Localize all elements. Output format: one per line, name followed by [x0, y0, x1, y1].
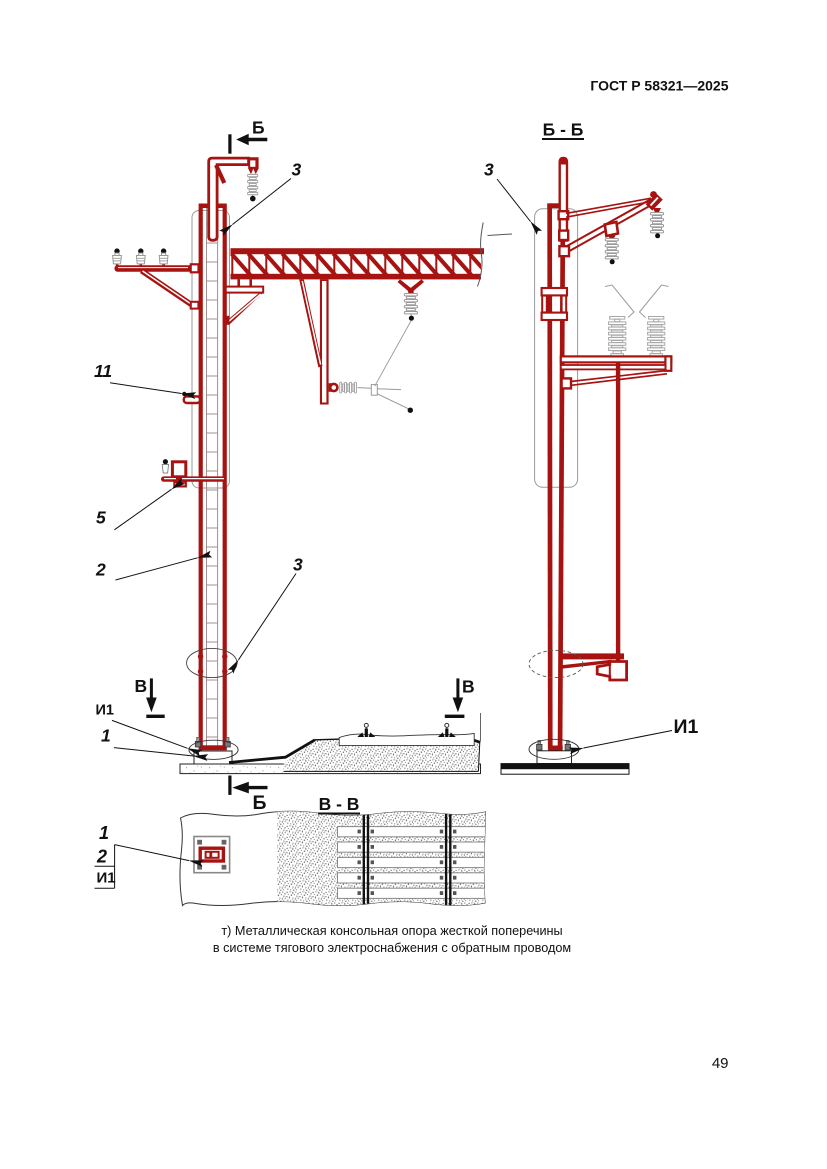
svg-text:Б - Б: Б - Б	[543, 120, 584, 140]
svg-text:ГОСТ Р 58321—2025: ГОСТ Р 58321—2025	[590, 78, 728, 94]
svg-text:1: 1	[101, 726, 111, 746]
svg-text:49: 49	[712, 1055, 729, 1072]
svg-text:2: 2	[95, 560, 106, 580]
svg-text:Б: Б	[252, 118, 265, 138]
svg-text:И1: И1	[674, 716, 699, 738]
svg-text:И1: И1	[96, 703, 115, 719]
svg-text:Б: Б	[253, 792, 267, 814]
svg-text:3: 3	[293, 555, 303, 575]
svg-text:2: 2	[96, 847, 107, 867]
svg-text:В: В	[462, 677, 475, 697]
svg-text:в системе тягового электроснаб: в системе тягового электроснабжения с об…	[213, 941, 571, 955]
svg-text:3: 3	[484, 160, 494, 180]
svg-text:3: 3	[292, 160, 302, 180]
svg-text:11: 11	[94, 361, 112, 381]
svg-text:В - В: В - В	[319, 794, 360, 814]
svg-text:В: В	[135, 676, 148, 696]
svg-text:т) Металлическая консольная оп: т) Металлическая консольная опора жестко…	[221, 924, 562, 938]
svg-text:И1: И1	[97, 870, 116, 887]
svg-text:1: 1	[99, 823, 109, 843]
svg-text:5: 5	[96, 508, 106, 528]
